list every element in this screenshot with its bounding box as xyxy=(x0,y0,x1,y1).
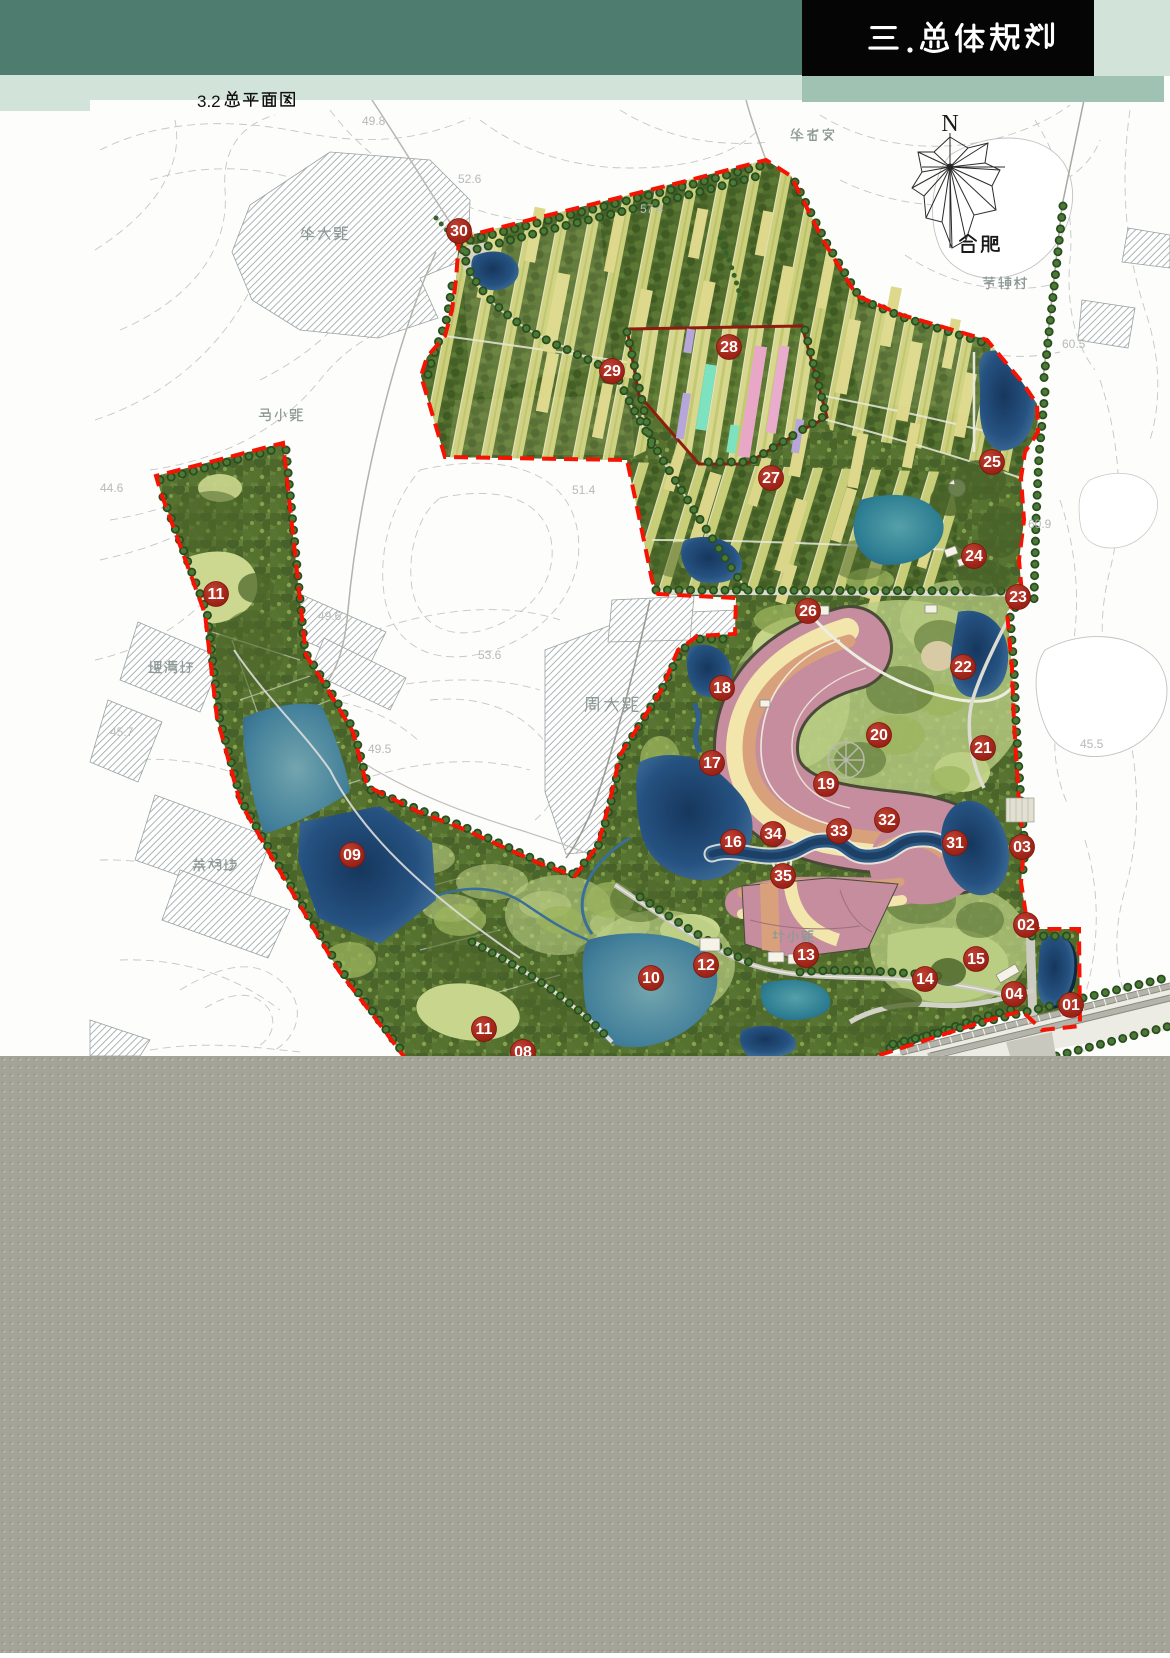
svg-text:26: 26 xyxy=(799,603,817,620)
svg-text:14: 14 xyxy=(916,971,934,988)
svg-text:60.5: 60.5 xyxy=(1062,337,1086,351)
svg-text:31: 31 xyxy=(946,835,964,852)
svg-text:45.7: 45.7 xyxy=(110,725,134,739)
svg-text:27: 27 xyxy=(762,470,780,487)
svg-text:11: 11 xyxy=(208,586,225,603)
svg-text:30: 30 xyxy=(450,223,468,240)
svg-text:23: 23 xyxy=(1009,589,1027,606)
svg-text:10: 10 xyxy=(642,970,660,987)
svg-text:17: 17 xyxy=(703,755,721,772)
svg-text:51.4: 51.4 xyxy=(572,483,596,497)
svg-text:28: 28 xyxy=(720,339,738,356)
svg-text:60.9: 60.9 xyxy=(1028,517,1052,531)
svg-text:09: 09 xyxy=(343,847,361,864)
svg-text:32: 32 xyxy=(878,812,896,829)
svg-text:18: 18 xyxy=(713,680,731,697)
svg-text:49.5: 49.5 xyxy=(368,742,392,756)
svg-text:24: 24 xyxy=(965,548,983,565)
svg-text:20: 20 xyxy=(870,727,888,744)
svg-text:34: 34 xyxy=(764,826,782,843)
svg-text:12: 12 xyxy=(697,957,715,974)
svg-text:11: 11 xyxy=(476,1021,493,1038)
svg-text:35: 35 xyxy=(774,868,792,885)
svg-text:57.4: 57.4 xyxy=(640,202,664,216)
svg-text:44.6: 44.6 xyxy=(100,481,124,495)
svg-text:01: 01 xyxy=(1062,997,1080,1014)
svg-text:49.6: 49.6 xyxy=(318,609,342,623)
svg-text:49.8: 49.8 xyxy=(362,114,386,128)
svg-text:21: 21 xyxy=(974,740,992,757)
svg-text:16: 16 xyxy=(724,834,742,851)
svg-text:52.6: 52.6 xyxy=(458,172,482,186)
svg-text:15: 15 xyxy=(967,951,985,968)
svg-text:13: 13 xyxy=(797,947,815,964)
svg-text:33: 33 xyxy=(830,823,848,840)
svg-text:19: 19 xyxy=(817,776,835,793)
svg-text:N: N xyxy=(941,111,958,137)
svg-text:03: 03 xyxy=(1013,839,1031,856)
svg-text:25: 25 xyxy=(983,454,1001,471)
svg-text:02: 02 xyxy=(1017,917,1035,934)
svg-text:53.6: 53.6 xyxy=(478,648,502,662)
svg-text:04: 04 xyxy=(1005,986,1023,1003)
svg-text:3.2: 3.2 xyxy=(197,92,221,111)
svg-text:29: 29 xyxy=(603,363,621,380)
svg-text:45.5: 45.5 xyxy=(1080,737,1104,751)
svg-text:22: 22 xyxy=(954,659,972,676)
